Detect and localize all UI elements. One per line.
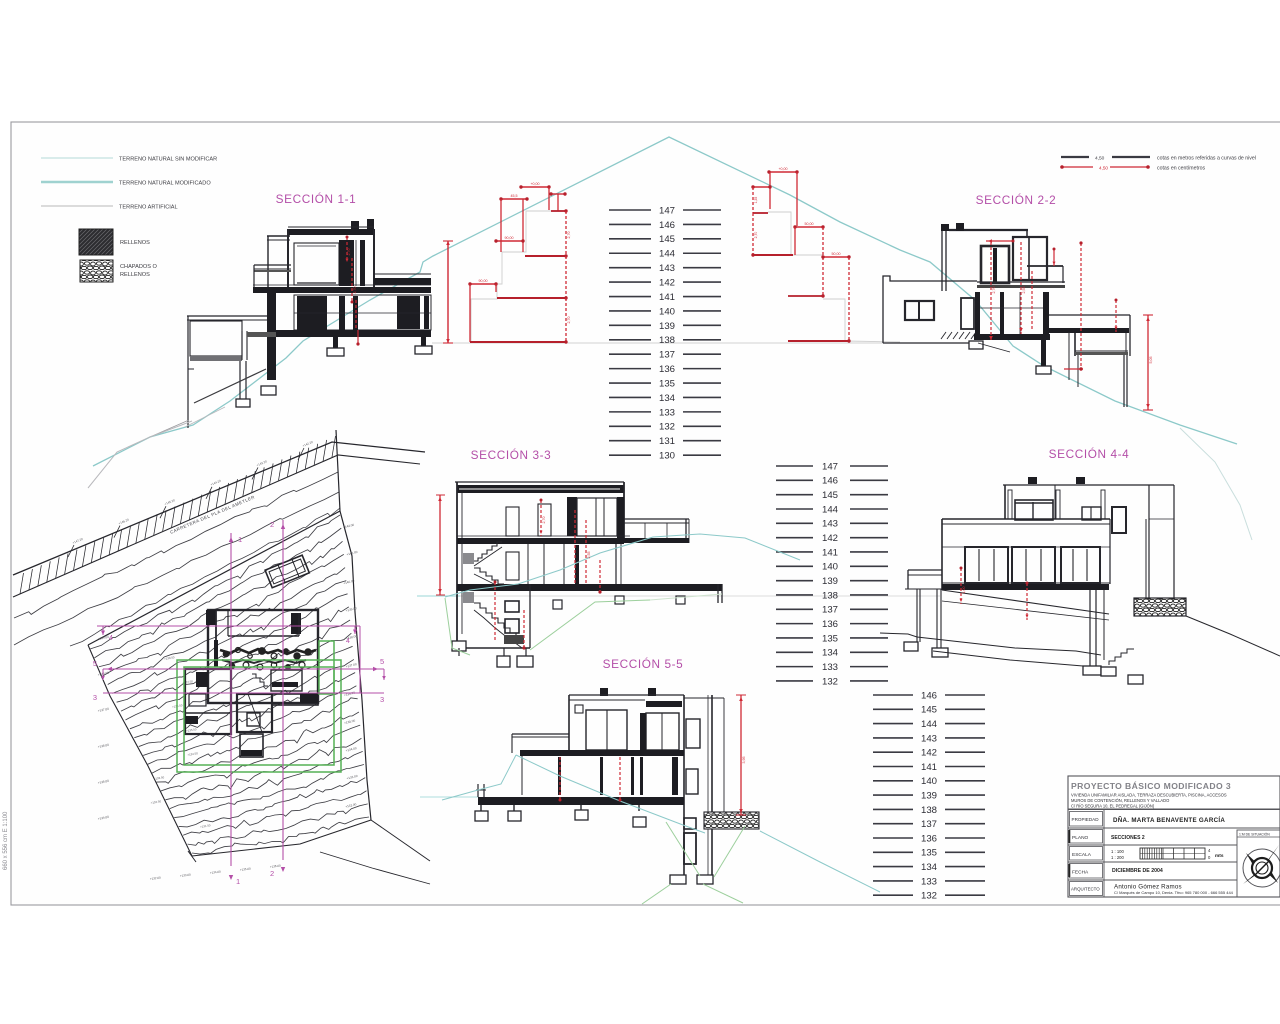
svg-text:+0,00: +0,00 <box>778 167 787 171</box>
svg-text:1 : 100: 1 : 100 <box>1111 849 1124 854</box>
svg-text:134: 134 <box>921 862 938 873</box>
svg-text:PLANO: PLANO <box>1072 835 1089 841</box>
svg-text:2,70: 2,70 <box>567 232 571 239</box>
svg-text:90,00: 90,00 <box>505 236 514 240</box>
svg-text:133: 133 <box>822 662 838 673</box>
svg-text:144: 144 <box>921 719 938 730</box>
svg-text:146: 146 <box>659 220 675 231</box>
svg-text:2: 2 <box>270 520 274 529</box>
svg-text:DÑA. MARTA BENAVENTE GARCÍA: DÑA. MARTA BENAVENTE GARCÍA <box>1113 816 1225 824</box>
svg-text:140: 140 <box>659 306 675 317</box>
svg-text:2,70: 2,70 <box>992 287 996 294</box>
svg-text:4,50: 4,50 <box>1095 156 1105 162</box>
svg-text:132: 132 <box>659 422 675 433</box>
svg-text:141: 141 <box>659 292 675 303</box>
svg-text:1,00: 1,00 <box>962 587 966 594</box>
svg-text:2: 2 <box>270 869 274 878</box>
svg-text:4: 4 <box>346 638 350 645</box>
svg-text:DICIEMBRE DE 2004: DICIEMBRE DE 2004 <box>1112 868 1163 874</box>
svg-text:2,70: 2,70 <box>754 232 758 239</box>
svg-text:MUROS DE CONTENCIÓN, RELLENOS: MUROS DE CONTENCIÓN, RELLENOS Y VALLADO <box>1071 798 1169 803</box>
svg-text:1,35: 1,35 <box>754 197 758 204</box>
svg-text:RELLENOS: RELLENOS <box>120 272 150 278</box>
svg-text:45,5: 45,5 <box>511 194 518 198</box>
svg-text:131: 131 <box>659 436 675 447</box>
svg-text:142: 142 <box>822 533 838 544</box>
svg-text:5: 5 <box>380 657 384 666</box>
svg-text:SECCIÓN 2-2: SECCIÓN 2-2 <box>976 193 1057 207</box>
svg-text:145: 145 <box>822 490 838 501</box>
svg-text:134: 134 <box>822 648 839 659</box>
svg-text:139: 139 <box>921 791 937 802</box>
svg-text:3: 3 <box>380 695 384 704</box>
svg-text:133: 133 <box>921 876 937 887</box>
svg-text:138: 138 <box>921 805 937 816</box>
svg-text:146: 146 <box>822 476 838 487</box>
svg-text:5: 5 <box>93 659 97 668</box>
svg-text:ESCALA: ESCALA <box>1072 852 1092 858</box>
svg-text:143: 143 <box>921 733 937 744</box>
svg-text:cotas en metros referidas a cu: cotas en metros referidas a curvas de ni… <box>1157 156 1256 162</box>
svg-text:1:M DE SITUACIÓN: 1:M DE SITUACIÓN <box>1239 831 1270 836</box>
svg-text:C/ Marqués de Campo 10, Denia.: C/ Marqués de Campo 10, Denia. Tfno: 965… <box>1114 890 1234 895</box>
svg-text:FECHA: FECHA <box>1072 870 1089 876</box>
svg-text:143: 143 <box>822 519 838 530</box>
svg-text:139: 139 <box>822 576 838 587</box>
svg-text:132: 132 <box>822 676 838 687</box>
svg-text:147: 147 <box>822 461 838 472</box>
svg-text:147: 147 <box>659 205 675 216</box>
svg-text:144: 144 <box>822 504 839 515</box>
svg-text:SECCIÓN 3-3: SECCIÓN 3-3 <box>471 448 552 462</box>
svg-text:135: 135 <box>659 378 675 389</box>
svg-text:133: 133 <box>659 407 675 418</box>
svg-text:140: 140 <box>921 776 937 787</box>
svg-text:ARQUITECTO: ARQUITECTO <box>1071 887 1100 892</box>
svg-text:VIVIENDA UNIFAMILIAR AISLADA,: VIVIENDA UNIFAMILIAR AISLADA, TERRAZA DE… <box>1071 793 1227 798</box>
svg-text:90,00: 90,00 <box>479 279 488 283</box>
svg-text:3,95: 3,95 <box>742 757 746 764</box>
svg-text:136: 136 <box>921 833 937 844</box>
svg-text:2,55: 2,55 <box>1022 287 1026 294</box>
svg-text:5,05: 5,05 <box>1149 357 1153 364</box>
svg-text:C/ RÍO SEGURA 10, EL PEDREGAL: C/ RÍO SEGURA 10, EL PEDREGAL (GIJÓN) <box>1071 804 1155 809</box>
svg-text:TERRENO NATURAL MODIFICADO: TERRENO NATURAL MODIFICADO <box>119 181 211 187</box>
svg-text:130: 130 <box>659 451 675 462</box>
svg-text:1: 1 <box>236 877 240 886</box>
svg-text:660 x 556 cm E 1:100: 660 x 556 cm E 1:100 <box>3 811 9 870</box>
svg-text:132: 132 <box>921 891 937 902</box>
svg-text:mts: mts <box>1215 853 1224 859</box>
svg-text:137: 137 <box>921 819 937 830</box>
svg-text:136: 136 <box>822 619 838 630</box>
svg-text:145: 145 <box>659 234 675 245</box>
svg-text:2,70: 2,70 <box>353 287 357 294</box>
svg-text:138: 138 <box>822 590 838 601</box>
svg-text:50,00: 50,00 <box>832 252 841 256</box>
svg-text:2,70: 2,70 <box>567 317 571 324</box>
svg-text:139: 139 <box>659 321 675 332</box>
svg-text:TERRENO NATURAL SIN MODIFICAR: TERRENO NATURAL SIN MODIFICAR <box>119 157 217 163</box>
svg-text:146: 146 <box>921 690 937 701</box>
svg-text:144: 144 <box>659 249 676 260</box>
svg-text:138: 138 <box>659 335 675 346</box>
svg-text:141: 141 <box>822 547 838 558</box>
svg-text:50,00: 50,00 <box>805 222 814 226</box>
svg-text:2,70: 2,70 <box>347 249 351 256</box>
svg-text:PROYECTO BÁSICO MODIFICADO 3: PROYECTO BÁSICO MODIFICADO 3 <box>1071 781 1231 791</box>
svg-text:SECCIÓN 1-1: SECCIÓN 1-1 <box>276 192 357 206</box>
svg-text:141: 141 <box>921 762 937 773</box>
svg-text:137: 137 <box>822 605 838 616</box>
svg-text:136: 136 <box>659 364 675 375</box>
svg-text:2,70: 2,70 <box>542 517 546 524</box>
svg-text:cotas en centímetros: cotas en centímetros <box>1157 166 1206 172</box>
svg-text:+0,00: +0,00 <box>530 182 539 186</box>
svg-text:135: 135 <box>822 633 838 644</box>
svg-text:135: 135 <box>921 848 937 859</box>
svg-text:3: 3 <box>93 693 97 702</box>
svg-text:4: 4 <box>109 635 113 642</box>
svg-text:142: 142 <box>659 278 675 289</box>
svg-text:145: 145 <box>921 705 937 716</box>
svg-text:142: 142 <box>921 748 937 759</box>
svg-text:SECCIÓN 5-5: SECCIÓN 5-5 <box>603 657 684 671</box>
svg-text:4,50: 4,50 <box>1099 166 1108 171</box>
svg-text:143: 143 <box>659 263 675 274</box>
svg-text:140: 140 <box>822 562 838 573</box>
svg-text:SECCIÓN 4-4: SECCIÓN 4-4 <box>1049 447 1130 461</box>
svg-text:134: 134 <box>659 393 676 404</box>
svg-text:RELLENOS: RELLENOS <box>120 240 150 246</box>
svg-text:137: 137 <box>659 350 675 361</box>
svg-text:PROPIEDAD: PROPIEDAD <box>1072 817 1100 822</box>
svg-text:1: 1 <box>238 535 242 544</box>
svg-text:TERRENO ARTIFICIAL: TERRENO ARTIFICIAL <box>119 205 178 211</box>
svg-text:SECCIONES 2: SECCIONES 2 <box>1111 835 1145 841</box>
svg-text:CHAPADOS O: CHAPADOS O <box>120 264 158 270</box>
svg-text:2,55: 2,55 <box>587 552 591 559</box>
svg-text:1 : 200: 1 : 200 <box>1111 855 1124 860</box>
